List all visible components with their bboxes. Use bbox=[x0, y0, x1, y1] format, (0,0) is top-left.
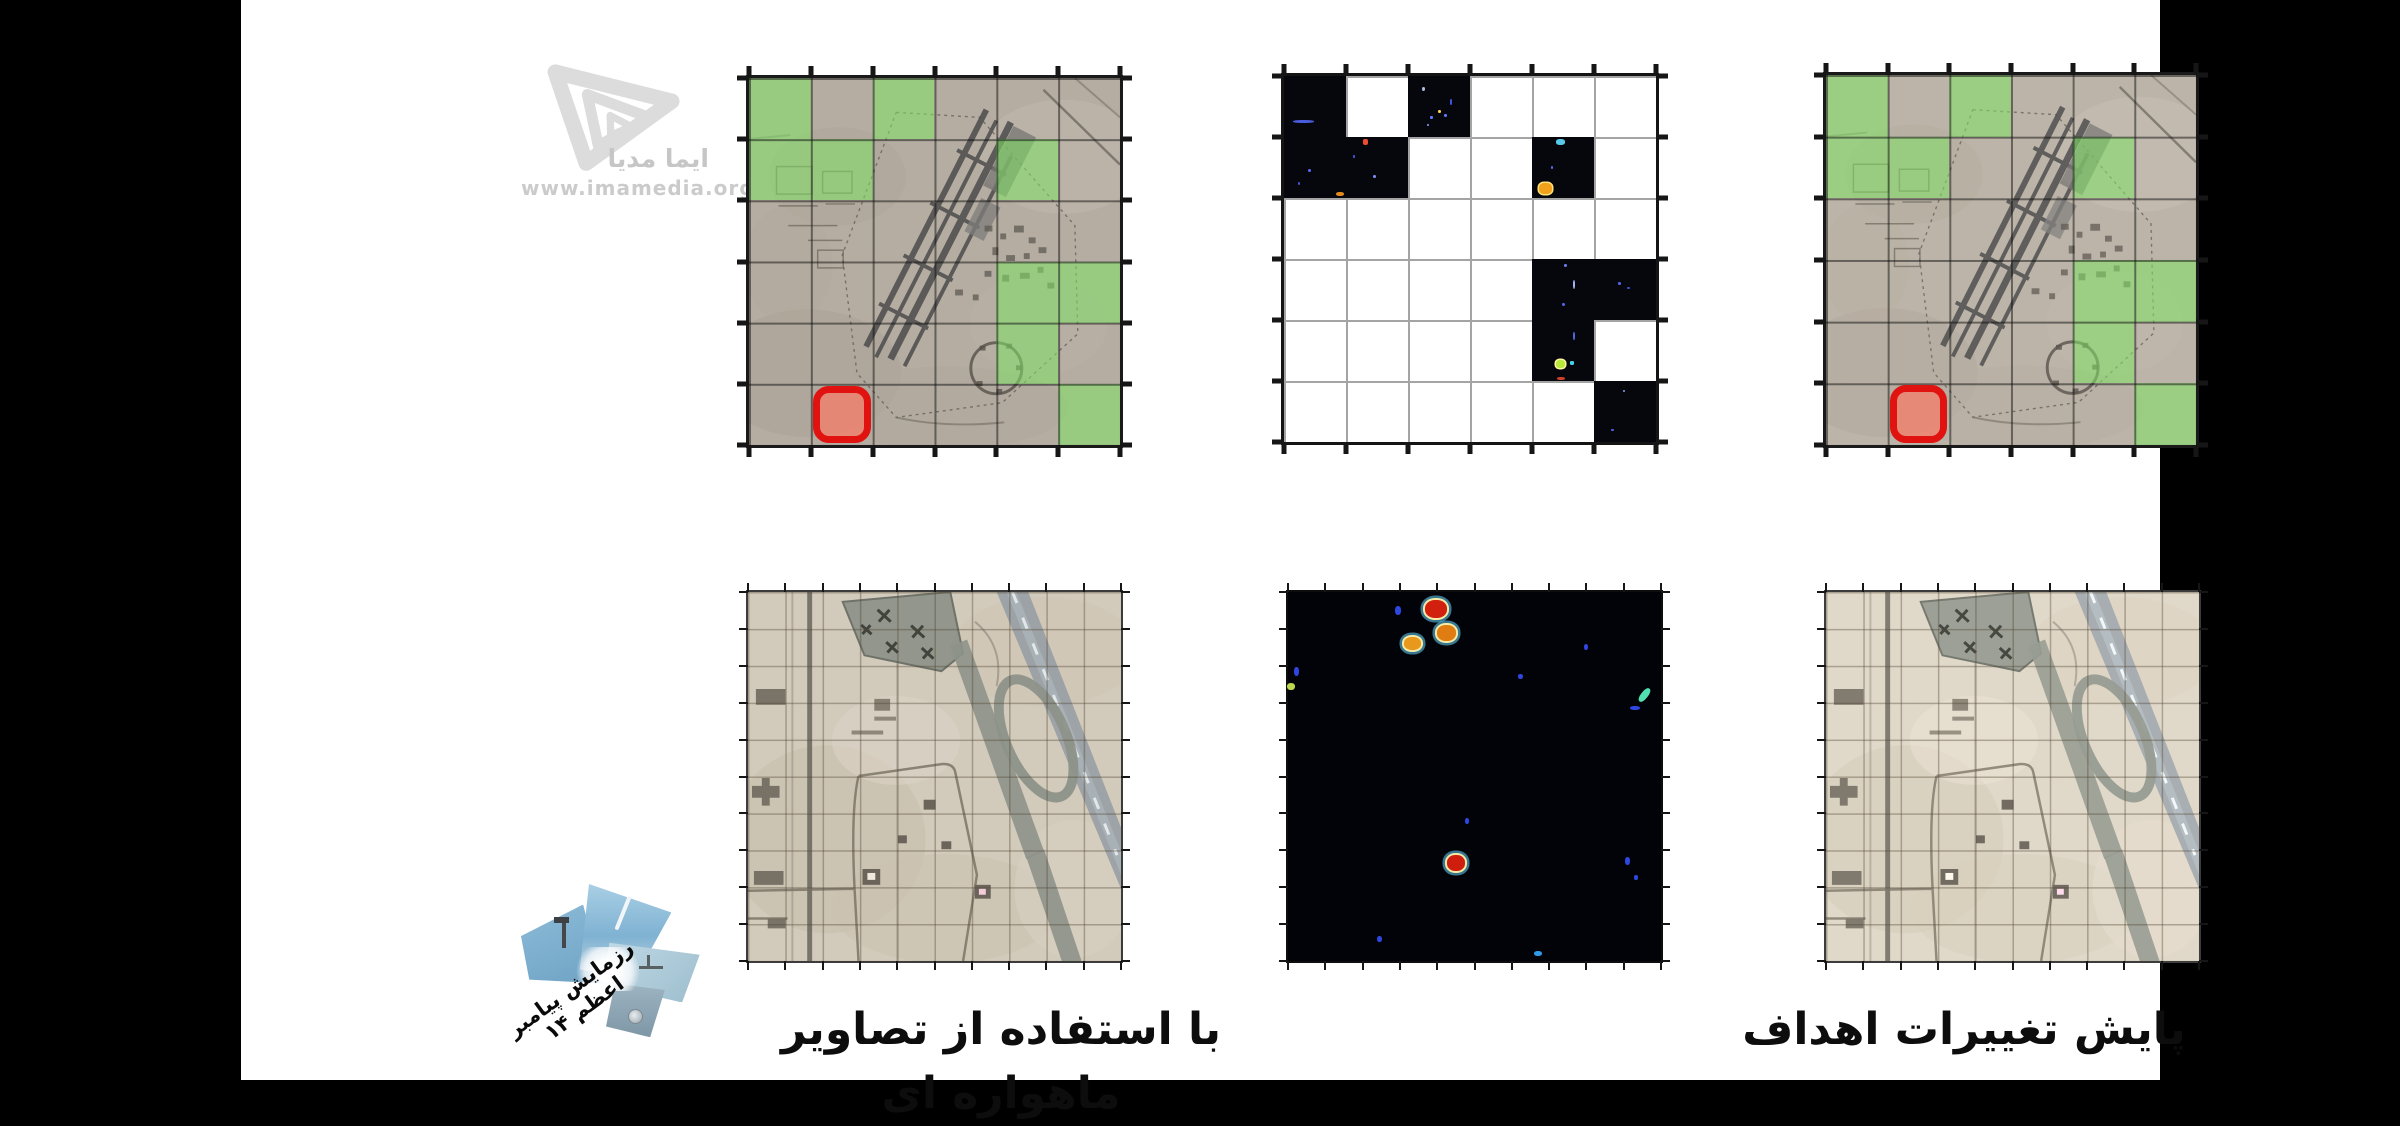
axis-tick bbox=[1817, 591, 1826, 593]
change-hotspot bbox=[1437, 625, 1456, 641]
axis-tick bbox=[1406, 64, 1411, 76]
changed-cell-overlay bbox=[2073, 137, 2135, 199]
change-noise-dot bbox=[1294, 667, 1299, 676]
change-speck bbox=[1611, 429, 1613, 431]
axis-tick bbox=[1661, 960, 1670, 962]
change-cells-overlay bbox=[749, 78, 1120, 445]
axis-tick bbox=[2161, 961, 2163, 970]
axis-tick bbox=[2199, 812, 2208, 814]
axis-tick bbox=[1362, 583, 1364, 592]
axis-tick bbox=[1121, 628, 1130, 630]
axis-tick bbox=[1592, 64, 1597, 76]
axis-tick bbox=[1121, 776, 1130, 778]
axis-tick bbox=[1272, 257, 1284, 262]
changed-cell-overlay bbox=[996, 323, 1058, 384]
axis-tick bbox=[1548, 583, 1550, 592]
axis-tick bbox=[2199, 886, 2208, 888]
axis-tick bbox=[1279, 812, 1288, 814]
axis-tick bbox=[859, 961, 861, 970]
axis-tick bbox=[1656, 135, 1668, 140]
mask-cell bbox=[1532, 259, 1594, 320]
axis-tick bbox=[2196, 319, 2208, 324]
axis-tick bbox=[1548, 961, 1550, 970]
axis-tick bbox=[1937, 961, 1939, 970]
axis-tick bbox=[1121, 812, 1130, 814]
axis-tick bbox=[1661, 702, 1670, 704]
axis-tick bbox=[932, 66, 937, 78]
change-speck bbox=[1556, 139, 1566, 144]
axis-tick bbox=[1399, 961, 1401, 970]
change-speck bbox=[1623, 390, 1625, 392]
mask-cell bbox=[1594, 259, 1656, 320]
axis-tick bbox=[1406, 442, 1411, 454]
axis-tick bbox=[747, 961, 749, 970]
axis-tick bbox=[1121, 960, 1130, 962]
axis-tick bbox=[1362, 961, 1364, 970]
radar-head-icon bbox=[554, 917, 569, 923]
change-noise-dot bbox=[1287, 683, 1295, 690]
axis-tick bbox=[1436, 583, 1438, 592]
changed-cell-overlay bbox=[1949, 75, 2011, 137]
axis-tick bbox=[896, 961, 898, 970]
change-speck bbox=[1573, 332, 1575, 339]
axis-tick bbox=[1056, 66, 1061, 78]
satellite-after-panel bbox=[1823, 72, 2199, 448]
caption-title: پایش تغییرات اهداف bbox=[1684, 998, 2244, 1062]
letterbox-bar-left bbox=[0, 0, 241, 1080]
axis-tick bbox=[737, 137, 749, 142]
axis-tick bbox=[1814, 134, 1826, 139]
axis-tick bbox=[1661, 812, 1670, 814]
axis-tick bbox=[1817, 702, 1826, 704]
axis-tick bbox=[1287, 961, 1289, 970]
axis-tick bbox=[739, 923, 748, 925]
change-speck bbox=[1336, 192, 1344, 196]
change-noise-dot bbox=[1518, 674, 1523, 679]
target-cell-marker bbox=[813, 386, 871, 443]
mask-cell bbox=[1532, 137, 1594, 198]
axis-tick bbox=[2196, 381, 2208, 386]
axis-tick bbox=[1083, 583, 1085, 592]
axis-tick bbox=[1121, 849, 1130, 851]
change-noise-dot bbox=[1584, 644, 1588, 650]
axis-tick bbox=[737, 443, 749, 448]
mask-cells-overlay bbox=[1284, 76, 1656, 442]
axis-tick bbox=[1120, 259, 1132, 264]
detail-before-panel bbox=[746, 590, 1123, 963]
axis-tick bbox=[2199, 960, 2208, 962]
axis-tick bbox=[1661, 665, 1670, 667]
axis-tick bbox=[1121, 739, 1130, 741]
axis-tick bbox=[1656, 196, 1668, 201]
change-hotspot bbox=[1404, 637, 1421, 650]
axis-tick bbox=[1817, 776, 1826, 778]
axis-tick bbox=[1656, 440, 1668, 445]
changed-cell-overlay bbox=[749, 78, 811, 139]
axis-tick bbox=[1083, 961, 1085, 970]
axis-tick bbox=[1118, 66, 1123, 78]
axis-tick bbox=[739, 886, 748, 888]
axis-tick bbox=[737, 320, 749, 325]
axis-tick bbox=[1279, 923, 1288, 925]
mask-cell bbox=[1594, 381, 1656, 442]
axis-tick bbox=[784, 583, 786, 592]
changed-cell-overlay bbox=[1826, 137, 1888, 199]
axis-tick bbox=[1279, 628, 1288, 630]
axis-tick bbox=[1825, 961, 1827, 970]
detail-satellite-image-after bbox=[1826, 592, 2199, 961]
axis-tick bbox=[1468, 64, 1473, 76]
axis-tick bbox=[870, 445, 875, 457]
change-speck bbox=[1353, 155, 1355, 157]
axis-tick bbox=[1814, 381, 1826, 386]
axis-tick bbox=[808, 445, 813, 457]
axis-tick bbox=[1279, 702, 1288, 704]
changed-cell-overlay bbox=[2073, 260, 2135, 322]
axis-tick bbox=[2070, 63, 2075, 75]
axis-tick bbox=[2199, 628, 2208, 630]
axis-tick bbox=[1661, 739, 1670, 741]
detail-satellite-image-before bbox=[748, 592, 1121, 961]
video-frame: { "watermark": { "brand": "ایما مدیا", "… bbox=[0, 0, 2400, 1080]
axis-tick bbox=[934, 961, 936, 970]
axis-tick bbox=[1585, 961, 1587, 970]
axis-tick bbox=[1120, 320, 1132, 325]
axis-tick bbox=[1008, 961, 1010, 970]
axis-tick bbox=[1585, 583, 1587, 592]
axis-tick bbox=[784, 961, 786, 970]
axis-tick bbox=[2199, 776, 2208, 778]
mask-cell bbox=[1346, 137, 1408, 198]
axis-tick bbox=[1814, 319, 1826, 324]
axis-tick bbox=[1120, 381, 1132, 386]
axis-tick bbox=[739, 628, 748, 630]
axis-tick bbox=[2198, 961, 2200, 970]
axis-tick bbox=[1324, 961, 1326, 970]
axis-tick bbox=[1885, 445, 1890, 457]
changed-cell-overlay bbox=[749, 139, 811, 200]
axis-tick bbox=[1045, 961, 1047, 970]
change-speck bbox=[1293, 120, 1314, 123]
change-noise-dot bbox=[1625, 857, 1630, 865]
axis-tick bbox=[2132, 445, 2137, 457]
change-noise-dot bbox=[1634, 875, 1638, 880]
axis-tick bbox=[1592, 442, 1597, 454]
changed-cell-overlay bbox=[996, 262, 1058, 323]
change-speck bbox=[1627, 287, 1629, 289]
change-hotspot bbox=[1447, 855, 1465, 871]
axis-tick bbox=[1324, 583, 1326, 592]
axis-tick bbox=[932, 445, 937, 457]
axis-tick bbox=[1272, 318, 1284, 323]
detail-after-panel bbox=[1824, 590, 2201, 963]
axis-tick bbox=[1661, 591, 1670, 593]
axis-tick bbox=[1817, 886, 1826, 888]
satellite-before-panel bbox=[746, 75, 1123, 448]
axis-tick bbox=[2086, 961, 2088, 970]
axis-tick bbox=[1862, 583, 1864, 592]
axis-tick bbox=[739, 739, 748, 741]
axis-tick bbox=[1279, 776, 1288, 778]
change-noise-dot bbox=[1534, 951, 1542, 956]
axis-tick bbox=[739, 702, 748, 704]
changed-cell-overlay bbox=[811, 139, 873, 200]
axis-tick bbox=[1900, 961, 1902, 970]
change-speck bbox=[1363, 139, 1367, 144]
mask-cell bbox=[1284, 76, 1346, 137]
change-speck bbox=[1422, 87, 1426, 91]
axis-tick bbox=[737, 259, 749, 264]
axis-tick bbox=[1272, 135, 1284, 140]
axis-tick bbox=[1656, 257, 1668, 262]
change-speck bbox=[1450, 99, 1452, 104]
axis-tick bbox=[1121, 665, 1130, 667]
change-noise-dot bbox=[1377, 936, 1382, 942]
satellite-dish-icon bbox=[628, 1009, 643, 1024]
axis-tick bbox=[1474, 583, 1476, 592]
axis-tick bbox=[1661, 886, 1670, 888]
axis-tick bbox=[2196, 443, 2208, 448]
axis-tick bbox=[1817, 923, 1826, 925]
axis-tick bbox=[896, 583, 898, 592]
axis-tick bbox=[1272, 196, 1284, 201]
axis-tick bbox=[1511, 961, 1513, 970]
change-noise-dot bbox=[1630, 706, 1640, 710]
axis-tick bbox=[1279, 739, 1288, 741]
change-speck bbox=[1444, 114, 1447, 117]
axis-tick bbox=[1974, 961, 1976, 970]
axis-tick bbox=[1272, 74, 1284, 79]
axis-tick bbox=[1947, 445, 1952, 457]
axis-tick bbox=[737, 76, 749, 81]
axis-tick bbox=[1817, 628, 1826, 630]
axis-tick bbox=[2199, 702, 2208, 704]
change-cells-overlay bbox=[1826, 75, 2196, 445]
axis-tick bbox=[1121, 591, 1130, 593]
axis-tick bbox=[739, 776, 748, 778]
axis-tick bbox=[1120, 137, 1132, 142]
axis-tick bbox=[1120, 961, 1122, 970]
axis-tick bbox=[1661, 776, 1670, 778]
axis-tick bbox=[2049, 961, 2051, 970]
axis-tick bbox=[1056, 445, 1061, 457]
axis-tick bbox=[2198, 583, 2200, 592]
axis-tick bbox=[1045, 583, 1047, 592]
axis-tick bbox=[737, 381, 749, 386]
axis-tick bbox=[1814, 258, 1826, 263]
change-speck bbox=[1438, 110, 1441, 114]
axis-tick bbox=[1121, 886, 1130, 888]
axis-tick bbox=[1120, 583, 1122, 592]
change-mask-panel bbox=[1281, 73, 1659, 445]
change-noise-dot bbox=[1465, 818, 1469, 824]
axis-tick bbox=[1814, 443, 1826, 448]
axis-tick bbox=[2161, 583, 2163, 592]
axis-tick bbox=[739, 665, 748, 667]
axis-tick bbox=[739, 812, 748, 814]
axis-tick bbox=[1660, 961, 1662, 970]
change-speck bbox=[1557, 377, 1565, 380]
axis-tick bbox=[1661, 849, 1670, 851]
axis-tick bbox=[1654, 64, 1659, 76]
changed-cell-overlay bbox=[996, 139, 1058, 200]
changed-cell-overlay bbox=[2134, 383, 2196, 445]
axis-tick bbox=[1279, 886, 1288, 888]
change-heatmap-panel bbox=[1286, 590, 1663, 963]
target-cell-marker bbox=[1890, 385, 1948, 443]
change-speck bbox=[1308, 169, 1311, 173]
axis-tick bbox=[1272, 379, 1284, 384]
axis-tick bbox=[1279, 849, 1288, 851]
changed-cell-overlay bbox=[873, 78, 935, 139]
axis-tick bbox=[737, 198, 749, 203]
radar-tower-icon bbox=[562, 922, 566, 948]
axis-tick bbox=[1120, 443, 1132, 448]
change-speck bbox=[1430, 116, 1432, 119]
change-speck bbox=[1427, 124, 1429, 126]
axis-tick bbox=[1436, 961, 1438, 970]
axis-tick bbox=[2199, 591, 2208, 593]
caption-method: با استفاده از تصاویر ماهواره ای bbox=[721, 998, 1281, 1126]
axis-tick bbox=[2012, 583, 2014, 592]
axis-tick bbox=[1862, 961, 1864, 970]
axis-tick bbox=[1661, 923, 1670, 925]
change-speck bbox=[1556, 360, 1565, 368]
axis-tick bbox=[1660, 583, 1662, 592]
changed-cell-overlay bbox=[2134, 260, 2196, 322]
axis-tick bbox=[1279, 960, 1288, 962]
axis-tick bbox=[822, 583, 824, 592]
changed-cell-overlay bbox=[1888, 137, 1950, 199]
axis-tick bbox=[1344, 442, 1349, 454]
change-speck bbox=[1573, 280, 1575, 290]
mask-cell bbox=[1284, 137, 1346, 198]
axis-tick bbox=[1661, 628, 1670, 630]
axis-tick bbox=[808, 66, 813, 78]
axis-tick bbox=[739, 960, 748, 962]
axis-tick bbox=[2123, 961, 2125, 970]
axis-tick bbox=[1279, 591, 1288, 593]
axis-tick bbox=[2049, 583, 2051, 592]
axis-tick bbox=[1656, 379, 1668, 384]
axis-tick bbox=[1120, 198, 1132, 203]
change-speck bbox=[1373, 175, 1376, 179]
axis-tick bbox=[1272, 440, 1284, 445]
axis-tick bbox=[1814, 196, 1826, 201]
exercise-logo: رزمایش پیامبر اعظم ۱۴ bbox=[497, 884, 715, 1042]
axis-tick bbox=[2196, 258, 2208, 263]
axis-tick bbox=[2196, 134, 2208, 139]
change-speck bbox=[1564, 264, 1567, 267]
change-speck bbox=[1570, 361, 1573, 364]
slide-canvas: ایما مدیا www.imamedia.org با استفاده از… bbox=[241, 0, 2160, 1080]
axis-tick bbox=[1121, 702, 1130, 704]
watermark-url: www.imamedia.org bbox=[521, 176, 709, 200]
axis-tick bbox=[1530, 442, 1535, 454]
axis-tick bbox=[1121, 923, 1130, 925]
changed-cell-overlay bbox=[1826, 75, 1888, 137]
axis-tick bbox=[2123, 583, 2125, 592]
change-hotspot bbox=[1425, 600, 1447, 618]
axis-tick bbox=[2199, 849, 2208, 851]
axis-tick bbox=[1937, 583, 1939, 592]
axis-tick bbox=[2196, 196, 2208, 201]
axis-tick bbox=[2070, 445, 2075, 457]
axis-tick bbox=[1530, 64, 1535, 76]
axis-tick bbox=[1817, 960, 1826, 962]
axis-tick bbox=[2199, 665, 2208, 667]
change-speck bbox=[1562, 303, 1565, 306]
axis-tick bbox=[2199, 923, 2208, 925]
axis-tick bbox=[1974, 583, 1976, 592]
axis-tick bbox=[994, 445, 999, 457]
axis-tick bbox=[971, 583, 973, 592]
changed-cell-overlay bbox=[2073, 322, 2135, 384]
axis-tick bbox=[1947, 63, 1952, 75]
axis-tick bbox=[1817, 812, 1826, 814]
axis-tick bbox=[1656, 318, 1668, 323]
axis-tick bbox=[1817, 739, 1826, 741]
axis-tick bbox=[2086, 583, 2088, 592]
axis-tick bbox=[971, 961, 973, 970]
axis-tick bbox=[1817, 849, 1826, 851]
axis-tick bbox=[934, 583, 936, 592]
axis-tick bbox=[859, 583, 861, 592]
axis-tick bbox=[870, 66, 875, 78]
changed-cell-overlay bbox=[1058, 384, 1120, 445]
axis-tick bbox=[2012, 961, 2014, 970]
axis-tick bbox=[1814, 73, 1826, 78]
axis-tick bbox=[739, 591, 748, 593]
change-noise-dot bbox=[1637, 687, 1652, 704]
change-speck bbox=[1539, 183, 1551, 194]
axis-tick bbox=[994, 66, 999, 78]
axis-tick bbox=[2009, 445, 2014, 457]
mask-cell bbox=[1408, 76, 1470, 137]
mask-cell bbox=[1532, 320, 1594, 381]
change-noise-dot bbox=[1395, 606, 1401, 615]
changed-cell-overlay bbox=[1058, 262, 1120, 323]
axis-tick bbox=[1279, 665, 1288, 667]
axis-tick bbox=[1900, 583, 1902, 592]
axis-tick bbox=[1399, 583, 1401, 592]
axis-tick bbox=[739, 849, 748, 851]
axis-tick bbox=[2199, 739, 2208, 741]
axis-tick bbox=[2009, 63, 2014, 75]
axis-tick bbox=[2132, 63, 2137, 75]
axis-tick bbox=[1468, 442, 1473, 454]
axis-tick bbox=[1623, 583, 1625, 592]
axis-tick bbox=[1344, 64, 1349, 76]
change-speck bbox=[1551, 166, 1553, 168]
axis-tick bbox=[1474, 961, 1476, 970]
axis-tick bbox=[822, 961, 824, 970]
axis-tick bbox=[1885, 63, 1890, 75]
change-speck bbox=[1298, 182, 1300, 184]
change-speck bbox=[1618, 282, 1621, 284]
axis-tick bbox=[1623, 961, 1625, 970]
axis-tick bbox=[1817, 665, 1826, 667]
axis-tick bbox=[1008, 583, 1010, 592]
axis-tick bbox=[1511, 583, 1513, 592]
watermark-brand-name: ایما مدیا bbox=[521, 144, 709, 173]
axis-tick bbox=[2194, 63, 2199, 75]
